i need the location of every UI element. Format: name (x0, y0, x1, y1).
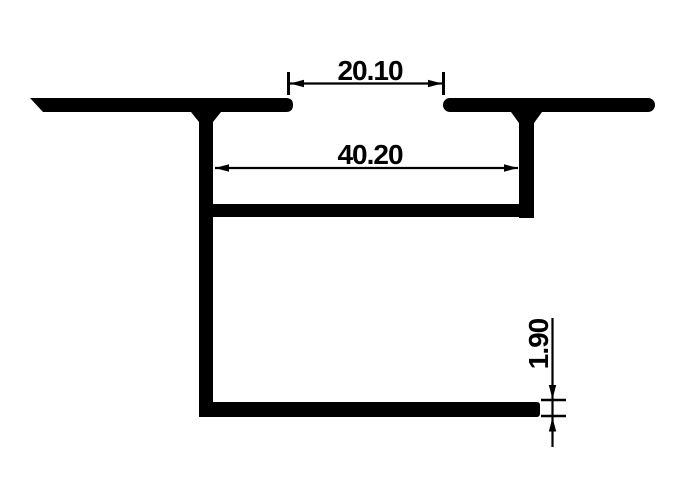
arrowhead-right-icon (428, 80, 442, 87)
arrowhead-left-icon (215, 164, 229, 171)
profile-right-web (519, 106, 534, 218)
fillet-left-web-right (213, 112, 221, 122)
dimension-inner-channel-width: 40.20 (215, 139, 518, 172)
fillet-right-web-right (534, 112, 542, 123)
fillet-left-web-left (191, 112, 199, 122)
dimension-top-slot-gap: 20.10 (289, 55, 444, 95)
dim-label-top-slot-gap: 20.10 (337, 55, 402, 86)
fillet-right-web-left (511, 112, 519, 123)
profile-drawing: 20.10 40.20 1.90 (0, 0, 700, 491)
drawing-canvas: 20.10 40.20 1.90 (0, 0, 700, 491)
profile-left-flange (30, 98, 293, 112)
profile-left-web (199, 106, 213, 417)
dim-label-inner-channel-width: 40.20 (337, 139, 402, 170)
dimension-bottom-wall-thickness: 1.90 (523, 318, 566, 447)
arrowhead-right-icon (504, 164, 518, 171)
dim-label-bottom-wall-thickness: 1.90 (523, 318, 554, 369)
profile-right-flange (443, 98, 655, 112)
arrowhead-left-icon (290, 80, 304, 87)
arrowhead-down-icon (549, 385, 556, 399)
profile-mid-wall (199, 204, 534, 217)
profile-bottom-wall (199, 402, 540, 417)
arrowhead-up-icon (549, 418, 556, 432)
